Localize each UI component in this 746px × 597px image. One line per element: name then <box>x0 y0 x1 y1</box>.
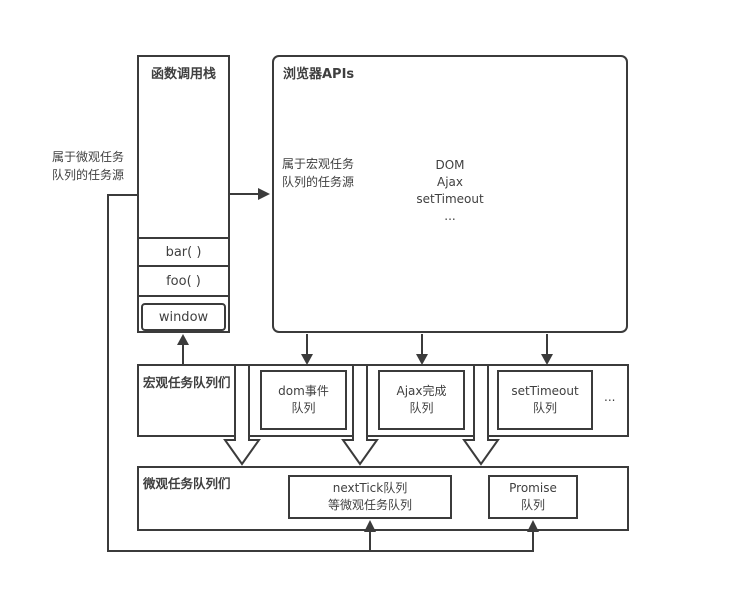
ajax-queue-line2: 队列 <box>409 400 433 417</box>
promise-queue-line1: Promise <box>509 480 557 497</box>
dom-event-queue-line2: 队列 <box>291 400 315 417</box>
stack-frame-foo: foo( ) <box>139 267 228 297</box>
api-list: DOM Ajax setTimeout ... <box>334 157 566 225</box>
api-list-ellipsis: ... <box>334 208 566 225</box>
call-stack-box: 函数调用栈 bar( ) foo( ) window <box>137 55 230 333</box>
browser-apis-title: 浏览器APIs <box>274 57 626 82</box>
event-loop-diagram: 属于微观任务 队列的任务源 函数调用栈 bar( ) foo( ) window… <box>0 0 746 597</box>
ajax-queue-line1: Ajax完成 <box>397 383 447 400</box>
api-item-ajax: Ajax <box>334 174 566 191</box>
call-stack-title: 函数调用栈 <box>139 57 228 82</box>
macro-queue-ellipsis: ... <box>604 388 615 406</box>
browser-apis-box: 浏览器APIs 属于宏观任务 队列的任务源 DOM Ajax setTimeou… <box>272 55 628 333</box>
stack-base-window: window <box>141 303 226 331</box>
ajax-queue: Ajax完成 队列 <box>378 370 465 430</box>
dom-event-queue: dom事件 队列 <box>260 370 347 430</box>
api-item-settimeout: setTimeout <box>334 191 566 208</box>
microtask-source-note: 属于微观任务 队列的任务源 <box>52 148 124 184</box>
promise-queue-line2: 队列 <box>521 497 545 514</box>
macro-queue-box: 宏观任务队列们 dom事件 队列 Ajax完成 队列 setTimeout 队列… <box>137 364 629 437</box>
micro-queue-title: 微观任务队列们 <box>143 473 231 492</box>
macro-queue-title: 宏观任务队列们 <box>143 372 231 391</box>
settimeout-queue-line1: setTimeout <box>511 383 578 400</box>
microtask-source-note-line2: 队列的任务源 <box>52 166 124 184</box>
nexttick-queue: nextTick队列 等微观任务队列 <box>288 475 452 519</box>
stack-frame-bar: bar( ) <box>139 237 228 267</box>
micro-queue-box: 微观任务队列们 nextTick队列 等微观任务队列 Promise 队列 <box>137 466 629 531</box>
settimeout-queue-line2: 队列 <box>533 400 557 417</box>
promise-queue: Promise 队列 <box>488 475 578 519</box>
arrowhead-stack-to-browser <box>258 188 270 200</box>
api-item-dom: DOM <box>334 157 566 174</box>
nexttick-queue-line2: 等微观任务队列 <box>328 497 412 514</box>
arrowhead-macro-to-stack <box>177 334 189 345</box>
settimeout-queue: setTimeout 队列 <box>497 370 593 430</box>
nexttick-queue-line1: nextTick队列 <box>333 480 407 497</box>
microtask-source-note-line1: 属于微观任务 <box>52 148 124 166</box>
dom-event-queue-line1: dom事件 <box>278 383 329 400</box>
